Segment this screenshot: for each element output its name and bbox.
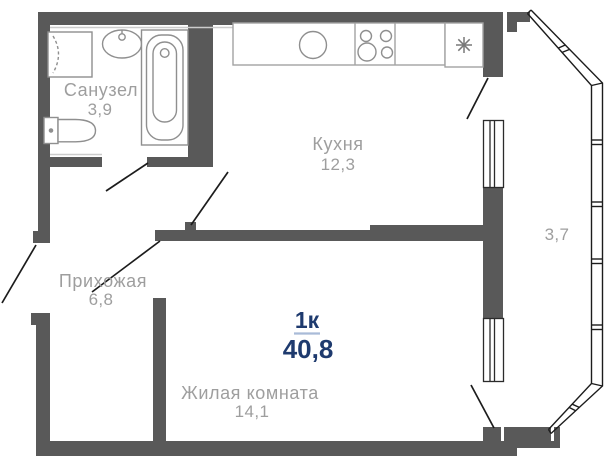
wall-bathroom-south-right — [147, 157, 213, 167]
wall-bathroom-right — [188, 25, 213, 167]
wall-interior-vertical — [153, 298, 166, 443]
balcony-south-slit — [501, 427, 504, 441]
wall-balcony-mid — [483, 188, 503, 318]
wall-interior-horizontal-thick — [370, 225, 490, 241]
glazing-inner-line — [528, 14, 592, 430]
window-kitchen-balcony — [484, 121, 504, 188]
wall-interior-horizontal — [155, 230, 370, 241]
unit-label: 1к 40,8 — [283, 307, 334, 364]
wall-left-upper-jamb — [33, 231, 38, 243]
room-label-hallway: Прихожая — [59, 271, 147, 291]
room-area-hallway: 6,8 — [89, 290, 114, 309]
snowflake-icon — [456, 37, 472, 53]
floor-plan: Санузел 3,9 Кухня 12,3 Прихожая 6,8 Жила… — [0, 0, 612, 466]
glazing-tick — [558, 45, 565, 48]
toilet-button — [49, 129, 52, 132]
door-balcony-living — [471, 385, 494, 428]
balcony-south-slit — [551, 427, 554, 441]
wall-bottom — [36, 441, 517, 456]
glazing-tick — [592, 83, 603, 86]
stove-burner — [382, 47, 393, 58]
glazing-tick — [562, 49, 570, 52]
door-bathroom — [106, 163, 148, 191]
unit-total-area: 40,8 — [283, 334, 334, 364]
unit-type-label: 1к — [295, 307, 320, 333]
floor-plan-drawing: Санузел 3,9 Кухня 12,3 Прихожая 6,8 Жила… — [0, 0, 612, 466]
glazing-tick — [569, 407, 576, 410]
window-living-balcony — [484, 319, 504, 382]
door-kitchen — [191, 172, 228, 225]
room-area-bathroom: 3,9 — [88, 100, 113, 119]
wall-left-lower-jamb — [31, 313, 36, 325]
glazing-tick — [572, 404, 579, 407]
stove-burner — [358, 43, 376, 61]
wall-top-right-step — [507, 12, 530, 32]
stove-burner — [381, 31, 392, 42]
room-label-bathroom: Санузел — [64, 80, 138, 100]
door-entrance — [2, 245, 36, 303]
room-label-living-room: Жилая комната — [181, 383, 319, 403]
toilet-icon — [58, 120, 96, 142]
room-label-kitchen: Кухня — [312, 134, 363, 154]
kitchen-counter — [233, 23, 445, 65]
stove-burner — [361, 31, 372, 42]
room-area-kitchen: 12,3 — [321, 155, 356, 174]
glazing-tick — [592, 384, 603, 387]
wall-bathroom-south-left — [50, 157, 102, 167]
wall-kitchen-door-jamb — [185, 222, 196, 230]
kitchen-sink-icon — [300, 32, 327, 59]
bathtub-drain — [160, 49, 169, 58]
sink-faucet — [119, 34, 125, 40]
wall-balcony-pillar-top — [483, 12, 503, 77]
room-area-living-room: 14,1 — [235, 402, 270, 421]
balcony-glazing — [528, 10, 603, 434]
wall-left-lower — [36, 313, 50, 456]
room-area-balcony: 3,7 — [545, 225, 570, 244]
door-balcony-kitchen — [467, 78, 488, 119]
